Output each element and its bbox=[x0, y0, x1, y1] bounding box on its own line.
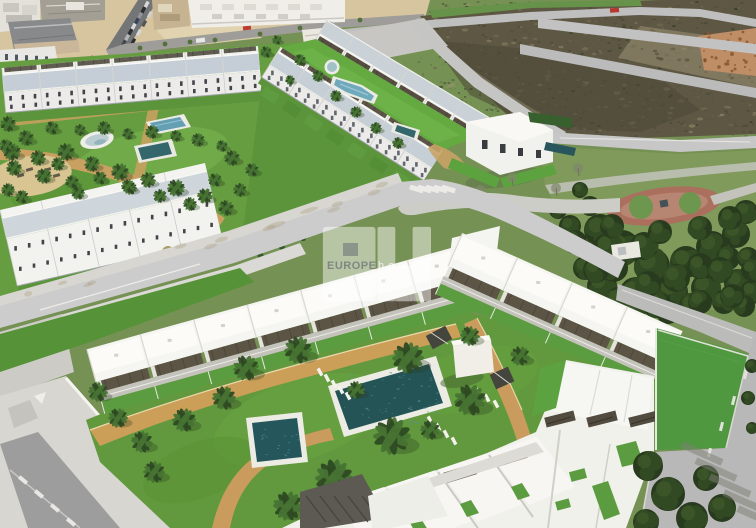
svg-text:EUROPE: EUROPE bbox=[327, 260, 376, 272]
svg-text:homes: homes bbox=[378, 260, 431, 272]
